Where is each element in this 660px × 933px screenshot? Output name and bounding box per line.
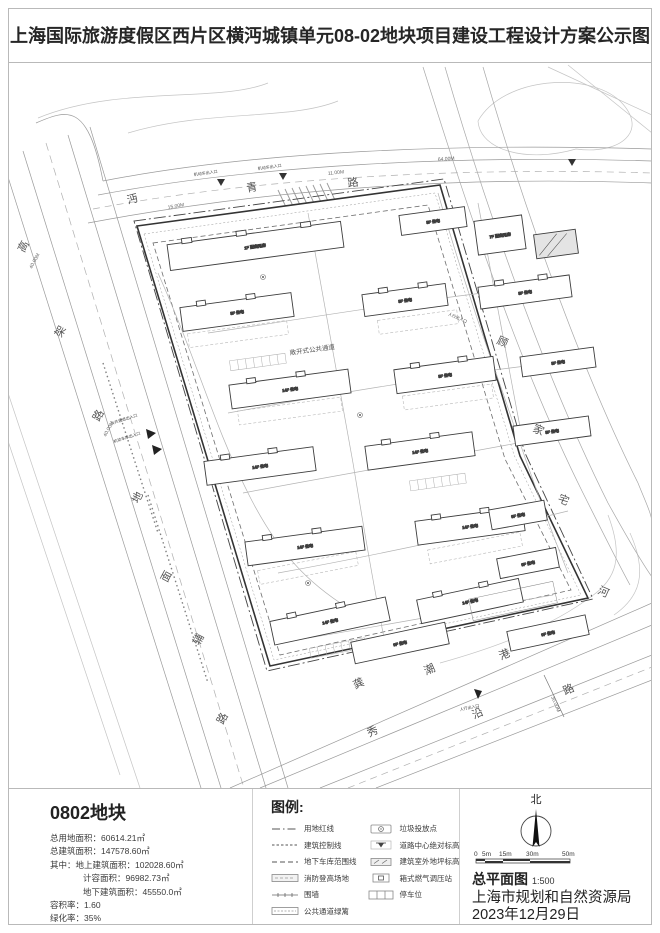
- svg-text:64.00M: 64.00M: [438, 156, 455, 163]
- parcel-info-panel: 0802地块 总用地面积：60614.21㎡ 总建筑面积：147578.60㎡ …: [8, 789, 253, 924]
- svg-text:青: 青: [245, 180, 258, 195]
- legend-item-fire-lane: 消防登高场地: [271, 873, 357, 884]
- svg-text:顾: 顾: [495, 334, 510, 350]
- trash-point-symbol-icon: [367, 824, 395, 834]
- page-title: 上海国际旅游度假区西片区横沔城镇单元08-02地块项目建设工程设计方案公示图: [10, 22, 650, 48]
- legend-item-red-line: 用地红线: [271, 823, 357, 834]
- svg-text:面: 面: [159, 569, 175, 584]
- parcel-title: 0802地块: [50, 799, 252, 825]
- svg-text:机动车库出入口: 机动车库出入口: [112, 430, 140, 444]
- north-arrow-icon: [504, 807, 568, 851]
- svg-text:路: 路: [561, 681, 576, 697]
- stat-total-floor-area: 总建筑面积：147578.60㎡: [50, 845, 252, 858]
- stat-underground-area: 地下建筑面积：45550.0㎡: [50, 886, 252, 899]
- svg-text:15m: 15m: [499, 851, 512, 858]
- svg-text:地: 地: [129, 490, 146, 506]
- hedge-symbol-icon: [271, 906, 299, 916]
- svg-text:宅: 宅: [556, 491, 572, 508]
- legend-title: 图例:: [271, 797, 459, 817]
- legend-item-parking: 停车位: [367, 889, 460, 900]
- svg-text:机动车出入口: 机动车出入口: [193, 168, 218, 177]
- stat-countable-area: 计容面积：96982.73㎡: [50, 872, 252, 885]
- legend-item-control-line: 建筑控制线: [271, 840, 357, 851]
- legend-item-ground-elevation: 建筑室外地坪标高: [367, 856, 460, 867]
- svg-text:路: 路: [347, 176, 360, 190]
- svg-text:30.00M: 30.00M: [549, 695, 561, 713]
- svg-text:机动车出入口: 机动车出入口: [257, 162, 282, 171]
- north-label: 北: [504, 791, 568, 807]
- svg-text:15.00M: 15.00M: [167, 202, 184, 211]
- legend-right-column: 垃圾投放点 道路中心绝对标高 建筑室外地坪标高 箱式燃气调压站: [367, 823, 460, 917]
- svg-text:路: 路: [214, 711, 231, 727]
- svg-text:40.00M: 40.00M: [28, 252, 41, 270]
- control-line-symbol-icon: [271, 840, 299, 850]
- drawing-scale: 1:500: [532, 876, 555, 886]
- red-line-symbol-icon: [271, 824, 299, 834]
- road-elevation-symbol-icon: [367, 840, 395, 850]
- svg-text:30m: 30m: [526, 851, 539, 858]
- svg-text:秀: 秀: [365, 723, 380, 739]
- svg-text:潮: 潮: [422, 660, 438, 677]
- svg-text:5m: 5m: [482, 851, 491, 858]
- stat-above-ground-area: 其中：地上建筑面积：102028.60㎡: [50, 859, 252, 872]
- svg-text:港: 港: [497, 646, 512, 662]
- legend-item-road-elevation: 道路中心绝对标高: [367, 840, 460, 851]
- legend-item-garage-line: 地下车库范围线: [271, 856, 357, 867]
- svg-text:架: 架: [52, 324, 69, 340]
- scale-bar-icon: 0 5m 15m 30m 50m: [472, 849, 602, 869]
- north-arrow: 北: [504, 791, 568, 856]
- svg-text:公共通道出入口: 公共通道出入口: [109, 412, 137, 426]
- legend-item-gas-station: 箱式燃气调压站: [367, 873, 460, 884]
- gas-station-symbol-icon: [367, 873, 395, 883]
- svg-text:高: 高: [14, 238, 32, 254]
- wall-symbol-icon: [271, 890, 299, 900]
- legend-item-hedge: 公共通道绿篱: [271, 906, 357, 917]
- legend-panel: 图例: 用地红线 建筑控制线 地下车库范围线: [253, 789, 460, 924]
- footer: 0802地块 总用地面积：60614.21㎡ 总建筑面积：147578.60㎡ …: [8, 788, 652, 924]
- fire-lane-symbol-icon: [271, 873, 299, 883]
- public-notice-drawing-page: 上海国际旅游度假区西片区横沔城镇单元08-02地块项目建设工程设计方案公示图: [0, 0, 660, 933]
- svg-text:路: 路: [90, 408, 107, 424]
- svg-text:0: 0: [474, 851, 478, 858]
- svg-text:50m: 50m: [562, 851, 575, 858]
- legend-left-column: 用地红线 建筑控制线 地下车库范围线 消防登高场地: [271, 823, 357, 917]
- svg-text:11.00M: 11.00M: [328, 169, 345, 177]
- stat-green-ratio: 绿化率：35%: [50, 912, 252, 925]
- drawing-info-panel: 北 0 5m 15m 30m 50m: [460, 789, 652, 924]
- svg-text:河: 河: [596, 584, 611, 600]
- legend-item-trash-point: 垃圾投放点: [367, 823, 460, 834]
- publish-date: 2023年12月29日: [472, 903, 580, 924]
- stat-total-land-area: 总用地面积：60614.21㎡: [50, 832, 252, 845]
- garage-line-symbol-icon: [271, 857, 299, 867]
- svg-text:龚: 龚: [351, 674, 367, 691]
- legend-item-wall: 围墙: [271, 889, 357, 900]
- title-block: 上海国际旅游度假区西片区横沔城镇单元08-02地块项目建设工程设计方案公示图: [8, 8, 652, 63]
- site-plan-svg: 1F 配套用房 9F 住宅 7F 配套用房 9F 住宅 9F 住宅 9F 住宅: [8, 63, 652, 788]
- site-plan-area: 1F 配套用房 9F 住宅 7F 配套用房 9F 住宅 9F 住宅 9F 住宅: [8, 63, 652, 788]
- stat-far: 容积率：1.60: [50, 899, 252, 912]
- svg-text:沔: 沔: [125, 191, 139, 206]
- parking-symbol-icon: [367, 890, 395, 900]
- ground-elevation-symbol-icon: [367, 857, 395, 867]
